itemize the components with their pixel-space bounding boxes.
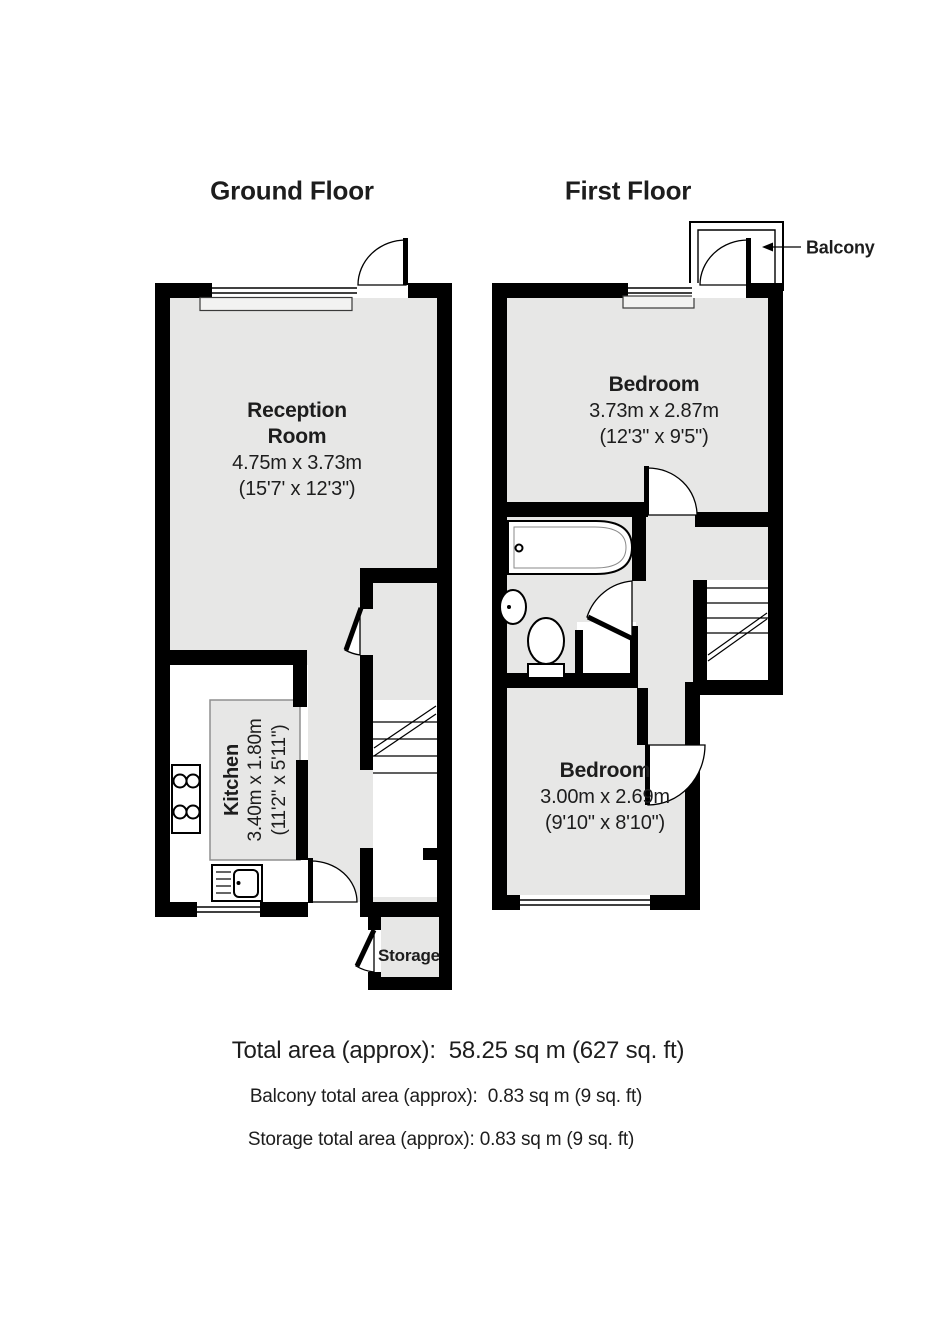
bedroom-front-label: Bedroom 3.73m x 2.87m (12'3" x 9'5") — [589, 372, 719, 450]
reception-room-label: Reception Room 4.75m x 3.73m (15'7' x 12… — [232, 398, 362, 502]
kitchen-metric-dimensions: 3.40m x 1.80m — [244, 718, 268, 841]
kitchen-label: Kitchen 3.40m x 1.80m (11'2" x 5'11") — [220, 718, 292, 841]
ground-floor-title: Ground Floor — [210, 176, 374, 207]
kitchen-imperial-dimensions: (11'2" x 5'11") — [268, 718, 292, 841]
bedroom-back-imperial-dimensions: (9'10" x 8'10") — [540, 810, 670, 836]
balcony-area-text: Balcony total area (approx): 0.83 sq m (… — [250, 1086, 642, 1108]
ground-stair-zone — [373, 700, 437, 897]
storage-door-arc — [356, 930, 374, 972]
reception-imperial-dimensions: (15'7' x 12'3") — [232, 476, 362, 502]
reception-metric-dimensions: 4.75m x 3.73m — [232, 450, 362, 476]
hob-icon — [172, 765, 200, 833]
ground-floor-plan — [155, 238, 452, 990]
kitchen-name: Kitchen — [220, 718, 244, 841]
bedroom-front-metric-dimensions: 3.73m x 2.87m — [589, 398, 719, 424]
balcony-label: Balcony — [806, 238, 875, 259]
reception-name-line2: Room — [232, 424, 362, 450]
sink-icon — [212, 865, 262, 901]
floorplan-page: Ground Floor First Floor Reception Room … — [0, 0, 940, 1334]
front-door-arc — [358, 238, 408, 285]
reception-name-line1: Reception — [232, 398, 362, 424]
wash-basin-icon — [500, 590, 526, 624]
kitchen-window — [197, 902, 260, 917]
bedroom-back-window — [520, 895, 650, 910]
bedroom-back-label: Bedroom 3.00m x 2.69m (9'10" x 8'10") — [540, 758, 670, 836]
storage-label: Storage — [378, 946, 440, 966]
bedroom-front-imperial-dimensions: (12'3" x 9'5") — [589, 424, 719, 450]
toilet-icon — [528, 618, 564, 678]
total-area-text: Total area (approx): 58.25 sq m (627 sq.… — [232, 1037, 685, 1065]
bedroom-front-name: Bedroom — [589, 372, 719, 398]
bathtub-icon — [508, 521, 632, 574]
bedroom-front-window — [623, 283, 694, 308]
reception-window — [200, 283, 357, 311]
bedroom-back-metric-dimensions: 3.00m x 2.69m — [540, 784, 670, 810]
first-floor-title: First Floor — [565, 176, 691, 207]
bedroom-back-name: Bedroom — [540, 758, 670, 784]
storage-area-text: Storage total area (approx): 0.83 sq m (… — [248, 1129, 634, 1151]
back-door-opening — [308, 902, 360, 917]
